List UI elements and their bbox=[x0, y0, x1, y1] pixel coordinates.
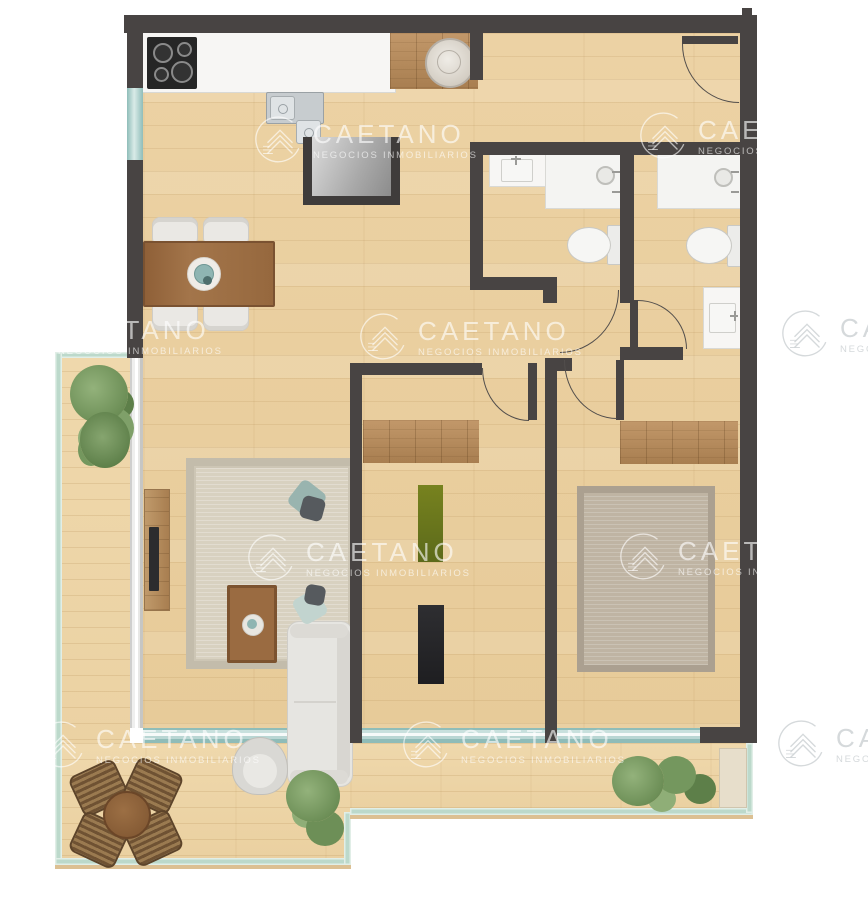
bathroom2-shower bbox=[657, 154, 742, 209]
bedroom-wardrobe bbox=[363, 420, 479, 463]
coffee-table-dish-icon bbox=[247, 619, 257, 629]
floor-plan: CAETANONEGOCIOS INMOBILIARIOSCAETANONEGO… bbox=[0, 0, 868, 899]
watermark-unit: CAETANONEGOCIOS INMOBILIARIOS bbox=[782, 310, 868, 360]
shower-faucet-icon bbox=[731, 171, 739, 173]
toilet-bowl bbox=[686, 227, 732, 264]
burner-icon bbox=[154, 67, 169, 82]
sofa-cushion-seam bbox=[294, 701, 336, 703]
washing-machine-door-icon bbox=[437, 50, 461, 74]
bathroom-left-wall bbox=[470, 142, 483, 290]
terrace-plant bbox=[286, 770, 340, 822]
kitchen-island-frame bbox=[303, 196, 400, 205]
vanity-basin bbox=[501, 159, 533, 182]
coffee-table bbox=[227, 585, 277, 663]
watermark-text-block: CAETANONEGOCIOS INMOBILIARIOS bbox=[836, 725, 868, 765]
kitchen-counter bbox=[143, 33, 396, 93]
exterior-wall-left bbox=[127, 160, 143, 358]
sink-drain-icon bbox=[278, 104, 288, 114]
master-door-leaf bbox=[616, 360, 624, 420]
kitchen-island-frame bbox=[391, 137, 400, 205]
shower-faucet-icon bbox=[731, 191, 739, 193]
terrace-plant bbox=[612, 756, 664, 806]
wall-notch bbox=[742, 8, 752, 16]
sofa-backrest bbox=[337, 628, 350, 780]
kitchen-island-top bbox=[312, 137, 391, 196]
watermark-brand-text: CAETANO bbox=[840, 315, 868, 341]
bathroom2-vanity bbox=[703, 287, 742, 349]
shower-faucet-icon bbox=[612, 191, 620, 193]
faucet-icon bbox=[511, 158, 521, 160]
exterior-wall-top bbox=[124, 15, 757, 33]
faucet-icon bbox=[734, 311, 736, 321]
terrace-planter-box bbox=[719, 748, 747, 808]
toilet-bowl bbox=[567, 227, 611, 263]
watermark-tagline-text: NEGOCIOS INMOBILIARIOS bbox=[836, 754, 868, 765]
terrace-edge-shadow-right bbox=[350, 815, 753, 819]
bathroom1-door-jamb bbox=[543, 277, 557, 303]
bathroom-divider-wall bbox=[620, 142, 634, 303]
caetano-logo-icon bbox=[782, 310, 832, 360]
sofa-pillow-dark bbox=[303, 583, 326, 606]
sofa bbox=[287, 621, 353, 787]
terrace-railing-left bbox=[55, 352, 62, 865]
dining-table bbox=[143, 241, 275, 307]
sofa-armrest bbox=[290, 624, 348, 638]
bathroom2-door-leaf bbox=[630, 300, 638, 348]
burner-icon bbox=[171, 61, 193, 83]
bedroom-top-wall bbox=[362, 363, 482, 375]
master-wardrobe bbox=[620, 421, 738, 464]
bathroom-block-top-wall bbox=[470, 142, 740, 155]
sink-basin bbox=[270, 96, 295, 120]
entrance-door-leaf bbox=[682, 36, 738, 44]
terrace-railing-step bbox=[344, 812, 351, 865]
bathroom1-shower bbox=[545, 154, 623, 209]
kitchen-window bbox=[127, 88, 143, 160]
watermark-unit: CAETANONEGOCIOS INMOBILIARIOS bbox=[778, 720, 868, 770]
kitchen-island-frame bbox=[303, 137, 312, 205]
kitchen-sink bbox=[266, 92, 324, 124]
bed-runner-dark bbox=[418, 605, 444, 684]
bathroom1-vanity bbox=[489, 154, 547, 187]
caetano-logo-icon bbox=[0, 312, 50, 362]
watermark-text-block: CAETANONEGOCIOS INMOBILIARIOS bbox=[840, 315, 868, 355]
burner-icon bbox=[177, 42, 192, 57]
terrace-railing-top bbox=[55, 352, 130, 358]
terrace-edge-shadow-left bbox=[55, 865, 351, 869]
vanity-basin bbox=[709, 303, 736, 333]
kitchen-cabinet-stub-wall bbox=[470, 33, 483, 80]
terrace-plant bbox=[80, 412, 130, 468]
laundry-cabinet bbox=[390, 33, 478, 89]
bedroom-door-leaf bbox=[528, 363, 537, 420]
watermark-tagline-text: NEGOCIOS INMOBILIARIOS bbox=[840, 344, 868, 355]
sliding-glass-doors bbox=[143, 728, 700, 743]
wall-bedroom-master bbox=[545, 363, 557, 743]
wall-living-bedroom bbox=[350, 363, 362, 743]
master-rug bbox=[577, 486, 715, 672]
exterior-wall-right bbox=[740, 33, 757, 743]
armchair bbox=[232, 737, 288, 795]
bed-runner-green bbox=[418, 485, 443, 562]
burner-icon bbox=[153, 43, 173, 63]
terrace-round-table bbox=[103, 791, 151, 839]
terrace-railing-bottom-right bbox=[350, 808, 753, 815]
tv bbox=[149, 527, 159, 591]
caetano-logo-icon bbox=[778, 720, 828, 770]
centerpiece-cup bbox=[203, 276, 212, 285]
shower-drain-icon bbox=[596, 166, 615, 185]
cooktop bbox=[147, 37, 197, 89]
terrace-railing-right bbox=[746, 743, 753, 813]
exterior-wall-bottom-corner bbox=[700, 727, 740, 743]
watermark-brand-text: CAETANO bbox=[836, 725, 868, 751]
terrace-deck-bottom-right bbox=[350, 743, 753, 815]
living-glass-wall bbox=[130, 358, 143, 728]
shower-faucet-icon bbox=[612, 171, 620, 173]
exterior-wall-left-upper bbox=[127, 33, 143, 88]
armchair-seat bbox=[243, 754, 277, 788]
